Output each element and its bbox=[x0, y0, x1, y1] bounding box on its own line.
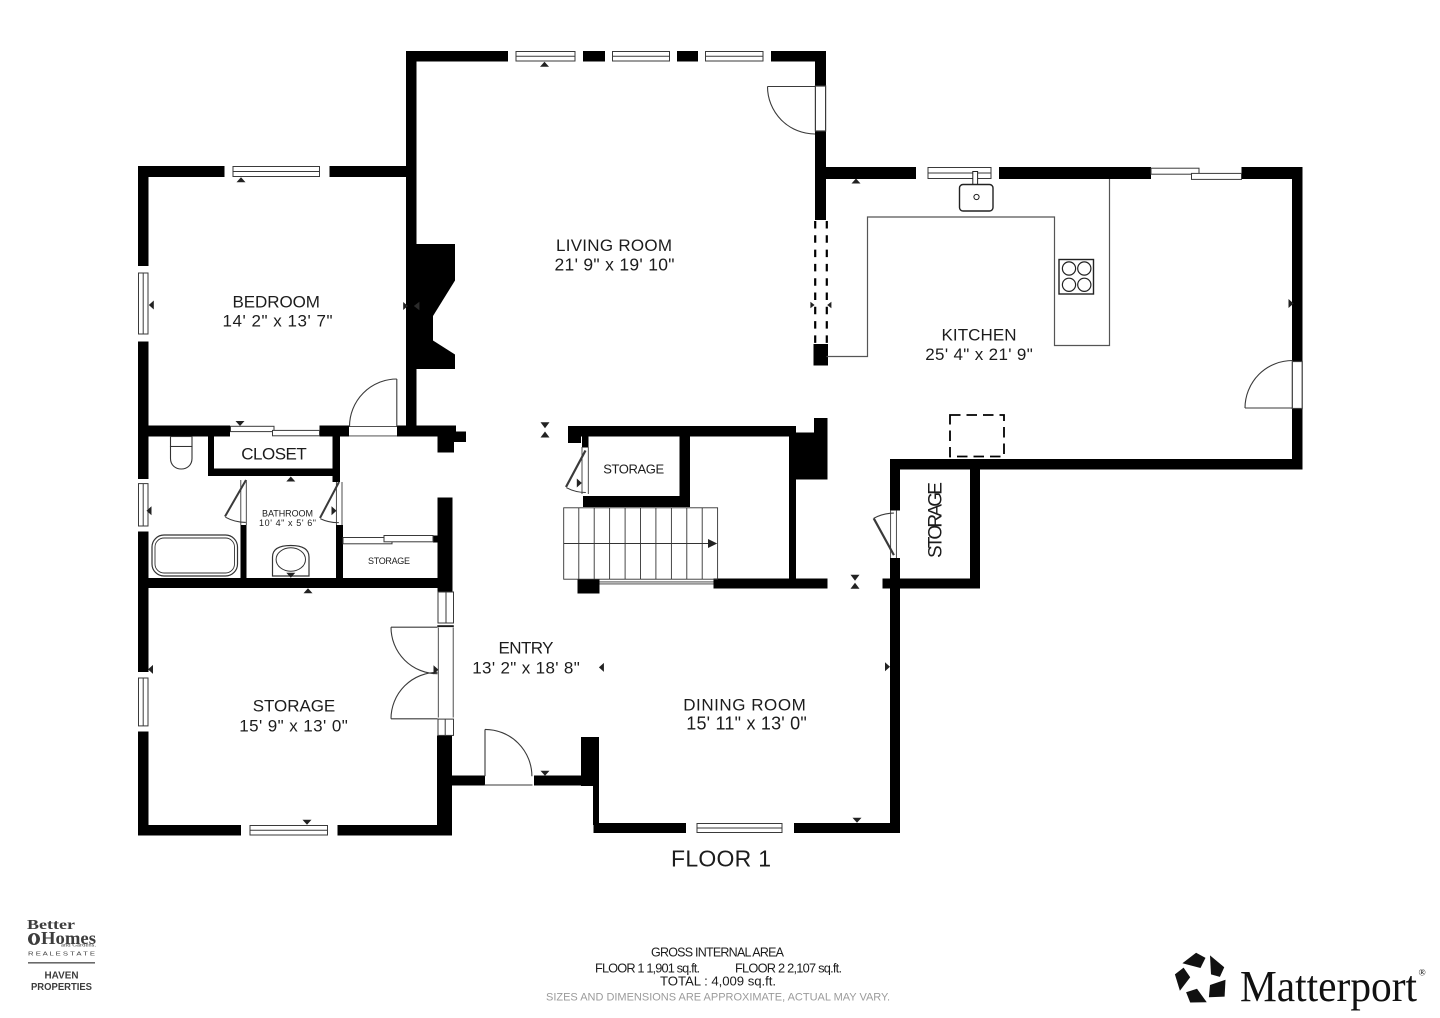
svg-text:10' 4" x 5' 6": 10' 4" x 5' 6" bbox=[259, 518, 316, 528]
svg-text:STORAGE: STORAGE bbox=[368, 556, 410, 566]
svg-text:15' 11" x 13' 0": 15' 11" x 13' 0" bbox=[686, 714, 807, 734]
svg-text:STORAGE: STORAGE bbox=[926, 482, 947, 558]
svg-text:CLOSET: CLOSET bbox=[241, 445, 307, 464]
svg-text:15' 9" x 13' 0": 15' 9" x 13' 0" bbox=[239, 716, 348, 735]
svg-text:ENTRY: ENTRY bbox=[499, 639, 554, 658]
svg-text:SIZES AND DIMENSIONS ARE APPRO: SIZES AND DIMENSIONS ARE APPROXIMATE, AC… bbox=[546, 992, 890, 1004]
svg-text:R E A L E S T A T E: R E A L E S T A T E bbox=[28, 952, 95, 958]
svg-text:25' 4" x 21' 9": 25' 4" x 21' 9" bbox=[925, 345, 1033, 364]
svg-text:21' 9" x 19' 10": 21' 9" x 19' 10" bbox=[555, 255, 675, 275]
svg-text:STORAGE: STORAGE bbox=[253, 697, 336, 716]
svg-text:®: ® bbox=[1419, 968, 1426, 979]
svg-text:DINING ROOM: DINING ROOM bbox=[683, 696, 806, 715]
svg-text:STORAGE: STORAGE bbox=[603, 462, 664, 477]
svg-text:FLOOR 1: FLOOR 1 bbox=[671, 845, 771, 871]
svg-text:TOTAL : 4,009 sq.ft.: TOTAL : 4,009 sq.ft. bbox=[660, 974, 776, 989]
svg-text:Matterport: Matterport bbox=[1240, 962, 1417, 1011]
svg-text:LIVING ROOM: LIVING ROOM bbox=[556, 236, 672, 255]
svg-text:13' 2" x 18' 8": 13' 2" x 18' 8" bbox=[472, 658, 580, 677]
svg-text:and Gardens.: and Gardens. bbox=[61, 943, 97, 949]
svg-text:HAVEN: HAVEN bbox=[45, 970, 79, 982]
svg-text:KITCHEN: KITCHEN bbox=[942, 326, 1017, 345]
svg-text:BEDROOM: BEDROOM bbox=[232, 293, 320, 312]
svg-text:GROSS INTERNAL AREA: GROSS INTERNAL AREA bbox=[651, 946, 785, 960]
svg-text:PROPERTIES: PROPERTIES bbox=[31, 981, 92, 993]
svg-text:14' 2" x 13' 7": 14' 2" x 13' 7" bbox=[223, 311, 333, 330]
